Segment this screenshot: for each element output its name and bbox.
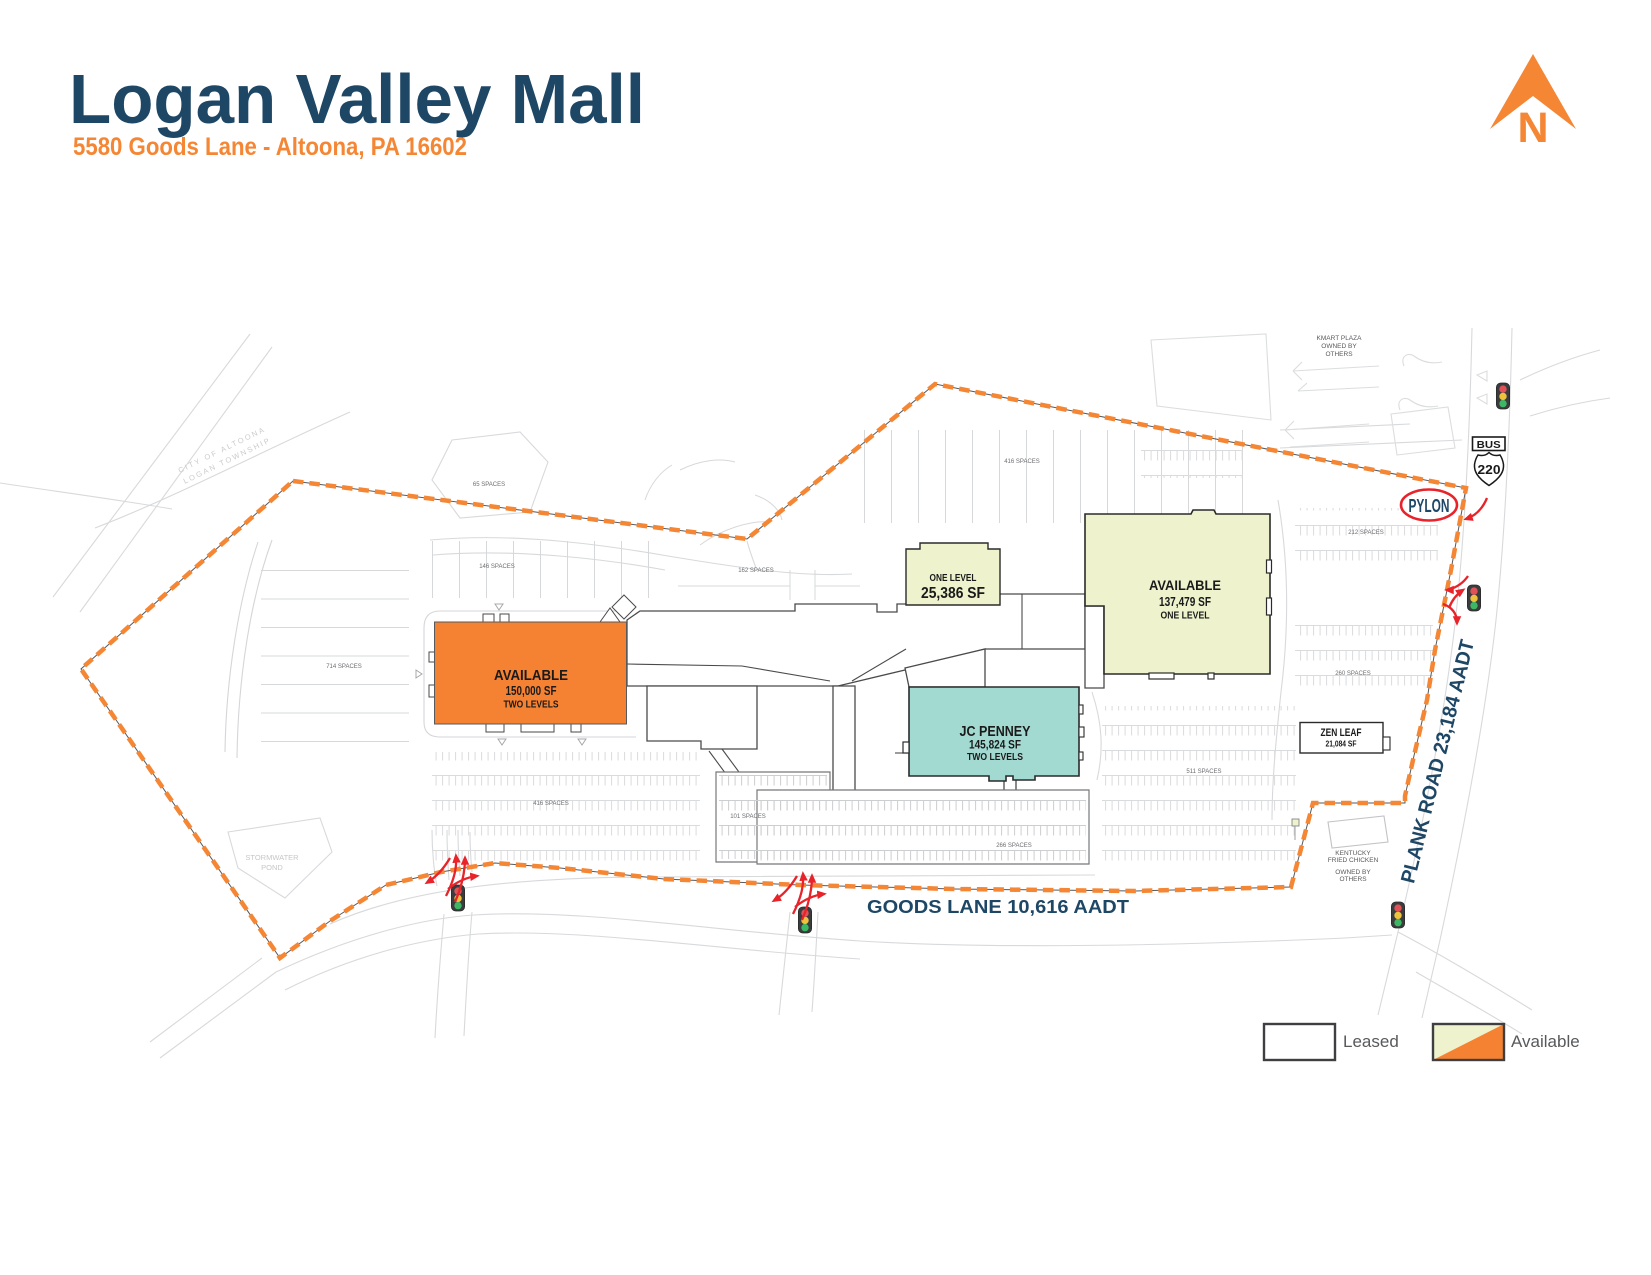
svg-text:146 SPACES: 146 SPACES — [479, 564, 515, 570]
svg-text:POND: POND — [261, 863, 283, 872]
svg-text:AVAILABLE: AVAILABLE — [494, 667, 568, 684]
svg-text:Available: Available — [1511, 1032, 1580, 1051]
svg-text:OTHERS: OTHERS — [1339, 876, 1367, 883]
svg-text:25,386 SF: 25,386 SF — [921, 585, 985, 602]
svg-text:220: 220 — [1478, 462, 1501, 477]
svg-text:GOODS LANE 10,616 AADT: GOODS LANE 10,616 AADT — [867, 896, 1130, 917]
svg-text:KMART PLAZA: KMART PLAZA — [1317, 335, 1363, 342]
svg-text:65 SPACES: 65 SPACES — [473, 482, 505, 488]
svg-text:Logan Valley Mall: Logan Valley Mall — [69, 60, 645, 138]
svg-text:OWNED BY: OWNED BY — [1335, 869, 1371, 876]
svg-text:AVAILABLE: AVAILABLE — [1149, 577, 1221, 593]
svg-text:511 SPACES: 511 SPACES — [1186, 769, 1221, 775]
svg-text:TWO LEVELS: TWO LEVELS — [504, 700, 559, 711]
svg-text:266 SPACES: 266 SPACES — [996, 843, 1032, 849]
svg-text:STORMWATER: STORMWATER — [245, 853, 299, 862]
svg-text:ONE LEVEL: ONE LEVEL — [1161, 610, 1210, 622]
svg-text:416 SPACES: 416 SPACES — [1004, 459, 1040, 465]
svg-text:FRIED CHICKEN: FRIED CHICKEN — [1328, 857, 1379, 864]
svg-text:OWNED BY: OWNED BY — [1321, 343, 1357, 350]
svg-text:137,479 SF: 137,479 SF — [1159, 594, 1211, 609]
svg-text:101 SPACES: 101 SPACES — [730, 814, 766, 820]
svg-text:145,824 SF: 145,824 SF — [969, 738, 1021, 752]
svg-text:PYLON: PYLON — [1409, 496, 1450, 516]
svg-text:KENTUCKY: KENTUCKY — [1335, 850, 1371, 857]
svg-text:416 SPACES: 416 SPACES — [533, 801, 569, 807]
svg-text:ZEN LEAF: ZEN LEAF — [1321, 727, 1362, 739]
svg-text:714 SPACES: 714 SPACES — [326, 664, 362, 670]
svg-text:TWO LEVELS: TWO LEVELS — [967, 751, 1023, 763]
svg-text:OTHERS: OTHERS — [1325, 351, 1353, 358]
svg-text:150,000 SF: 150,000 SF — [506, 684, 557, 698]
svg-text:BUS: BUS — [1477, 439, 1501, 451]
svg-text:260 SPACES: 260 SPACES — [1335, 671, 1371, 677]
svg-text:Leased: Leased — [1343, 1032, 1399, 1051]
svg-text:162 SPACES: 162 SPACES — [738, 568, 774, 574]
svg-text:ONE LEVEL: ONE LEVEL — [930, 572, 977, 584]
svg-text:21,084 SF: 21,084 SF — [1326, 739, 1357, 749]
svg-text:N: N — [1517, 104, 1548, 152]
svg-text:5580 Goods Lane - Altoona, PA: 5580 Goods Lane - Altoona, PA 16602 — [73, 133, 467, 161]
svg-text:212 SPACES: 212 SPACES — [1348, 530, 1384, 536]
